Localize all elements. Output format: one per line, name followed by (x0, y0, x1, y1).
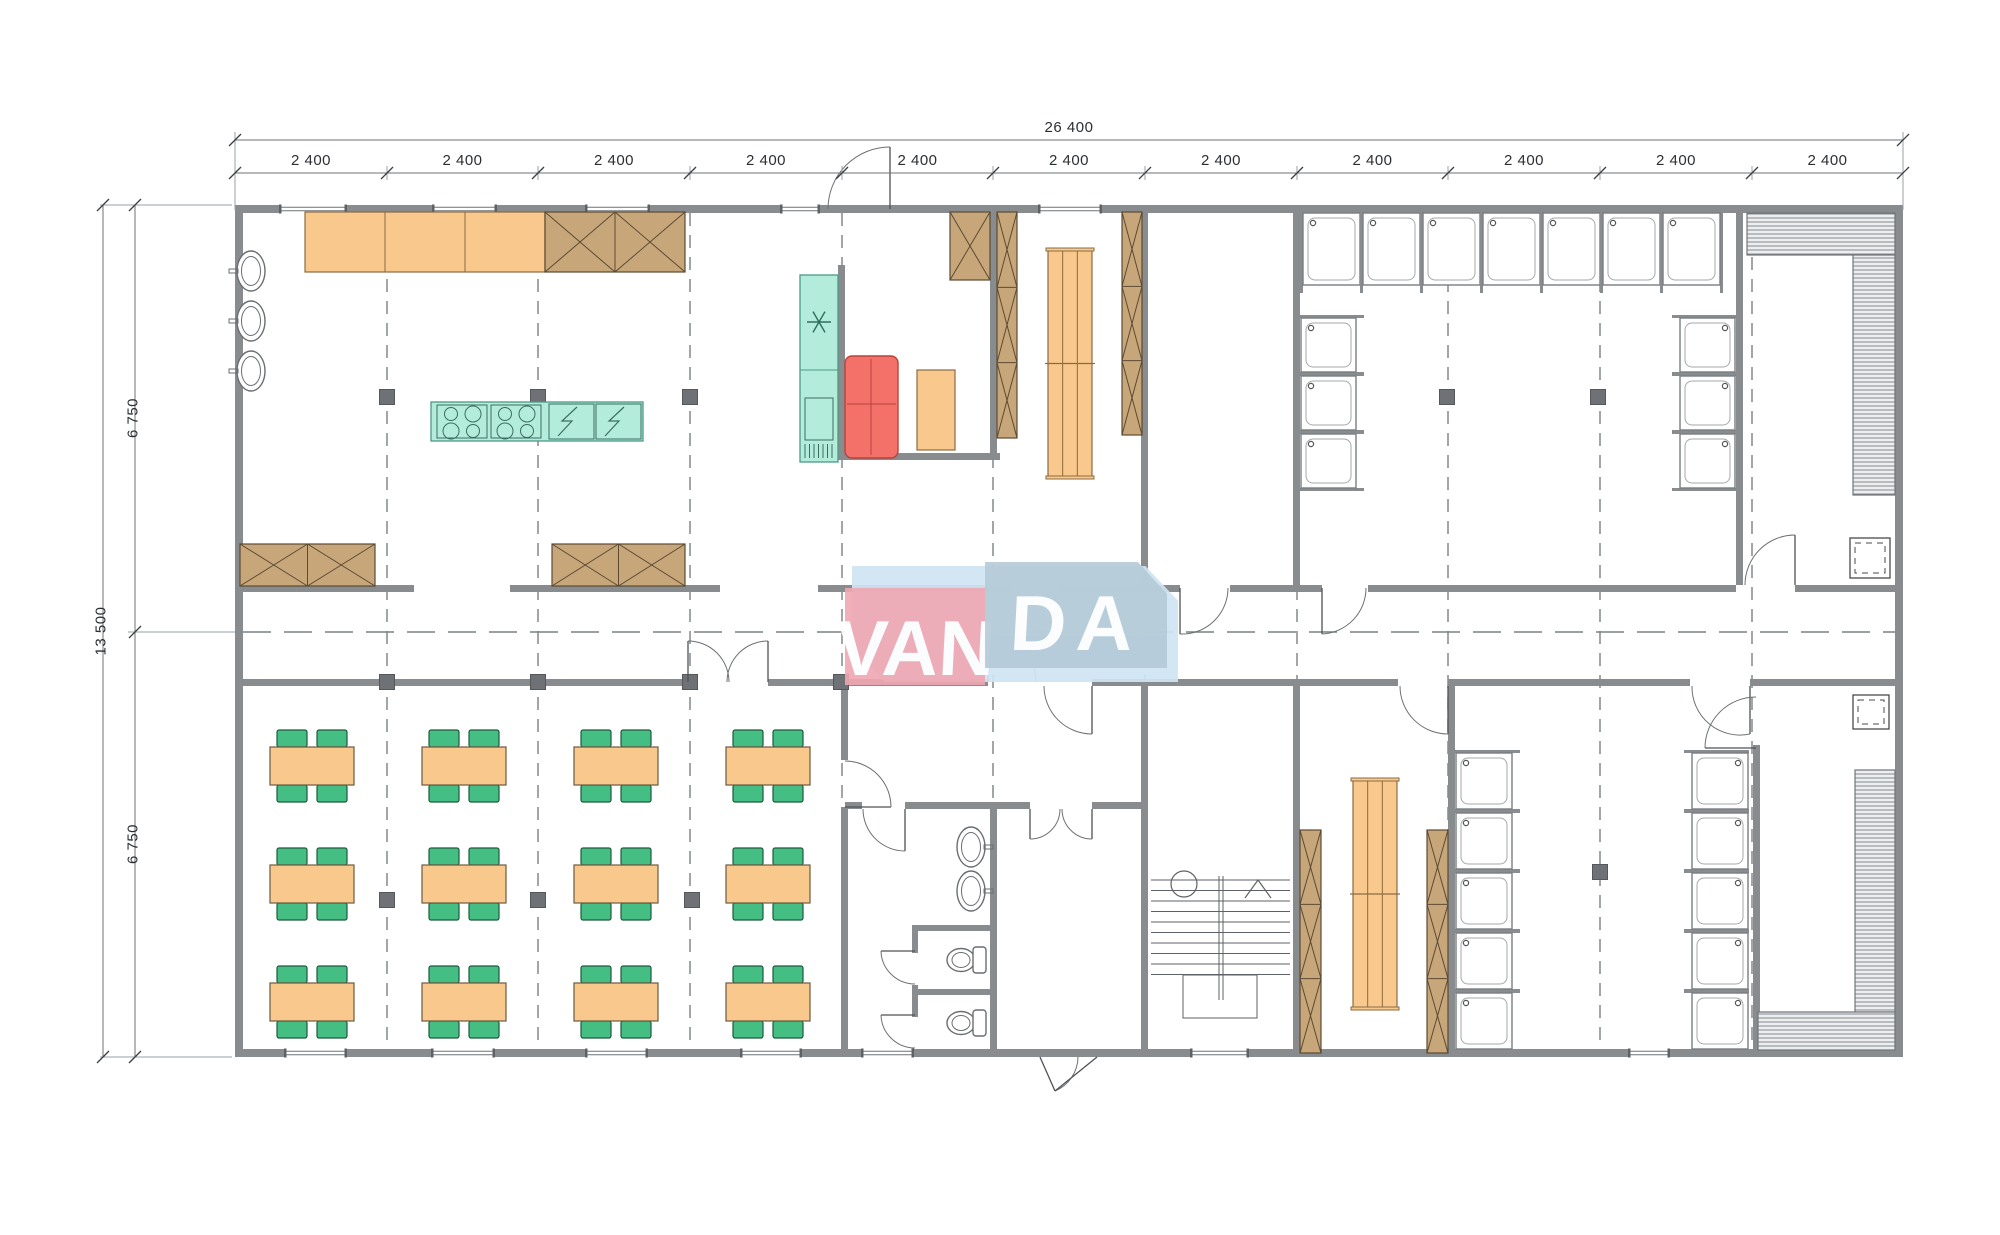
structural-column (834, 675, 849, 690)
dining-chair (277, 903, 307, 920)
window-jamb (1190, 1049, 1193, 1058)
door-swing-arc (1055, 1057, 1078, 1091)
structural-column (683, 675, 698, 690)
wall (1092, 802, 1145, 809)
window-jamb (800, 1049, 803, 1058)
dining-chair (773, 730, 803, 747)
wall (1795, 585, 1895, 592)
window-jamb (646, 1049, 649, 1058)
sauna-heater (1850, 538, 1890, 578)
bench-end-cap (1046, 248, 1094, 251)
dining-chair (277, 785, 307, 802)
dining-chair (469, 785, 499, 802)
dining-table (726, 865, 810, 903)
sauna-heater-inner (1855, 543, 1885, 573)
window-jamb (912, 1049, 915, 1058)
window-jamb (1038, 205, 1041, 214)
door-swing-arc (1044, 686, 1092, 734)
dining-table (270, 983, 354, 1021)
dining-chair (469, 966, 499, 983)
dining-chair (621, 848, 651, 865)
window (587, 1049, 646, 1057)
stair-landing (1183, 975, 1257, 1018)
window-jamb (1668, 1049, 1671, 1058)
wall (918, 925, 993, 931)
door-leaf (1040, 1057, 1055, 1091)
wall (841, 686, 848, 760)
door-swing-arc (863, 809, 905, 851)
window (1192, 1049, 1247, 1057)
window-jamb (861, 1049, 864, 1058)
door-swing-arc (1322, 588, 1366, 634)
wall (1141, 686, 1148, 1049)
dining-chair (429, 730, 459, 747)
window (286, 1049, 345, 1057)
floor-plan-drawing (0, 0, 2000, 1235)
dining-chair (277, 1021, 307, 1038)
wall (1750, 679, 1895, 686)
floor-plan-canvas: VAN DA 26 4002 4002 4002 4002 4002 4002 … (0, 0, 2000, 1235)
dining-chair (469, 903, 499, 920)
window-jamb (279, 205, 282, 214)
dimension-label: 26 400 (1045, 119, 1094, 136)
structural-column (531, 675, 546, 690)
kitchen-counter (305, 212, 545, 272)
window-jamb (345, 1049, 348, 1058)
window-jamb (431, 1049, 434, 1058)
dining-chair (733, 966, 763, 983)
stair-direction-arrow (1245, 880, 1271, 898)
dining-chair (317, 785, 347, 802)
dining-chair (733, 848, 763, 865)
wall (838, 265, 845, 460)
dimension-label: 2 400 (897, 152, 937, 169)
wall (1736, 213, 1743, 585)
dining-chair (317, 730, 347, 747)
dining-chair (773, 848, 803, 865)
sauna-heater-inner (1858, 700, 1884, 724)
wall (818, 585, 1010, 592)
dimension-label: 2 400 (1504, 152, 1544, 169)
dining-table (422, 983, 506, 1021)
sauna-bench-hatch (1747, 213, 1895, 255)
dining-chair (469, 730, 499, 747)
dining-chair (621, 785, 651, 802)
shower-tray (1663, 213, 1720, 285)
wall (1230, 585, 1322, 592)
window (742, 1049, 800, 1057)
dining-table (574, 983, 658, 1021)
wall (1368, 585, 1736, 592)
window-jamb (493, 1049, 496, 1058)
shower-tray (1303, 213, 1360, 285)
dimension-label: 2 400 (1352, 152, 1392, 169)
toilet-tank (973, 947, 986, 973)
dining-chair (773, 966, 803, 983)
dining-table (574, 747, 658, 785)
wall (235, 213, 243, 1049)
structural-column (380, 390, 395, 405)
dining-chair (317, 1021, 347, 1038)
dimension-label: 2 400 (746, 152, 786, 169)
dining-chair (773, 1021, 803, 1038)
dimension-label: 6 750 (125, 398, 142, 438)
dining-table (726, 747, 810, 785)
door-swing-arc (1030, 809, 1060, 839)
dining-chair (277, 730, 307, 747)
dining-chair (429, 785, 459, 802)
window-jamb (740, 1049, 743, 1058)
window (1040, 205, 1100, 213)
dimension-label: 2 400 (1201, 152, 1241, 169)
dining-chair (733, 903, 763, 920)
dining-chair (581, 785, 611, 802)
dimension-label: 2 400 (442, 152, 482, 169)
dimension-label: 6 750 (125, 824, 142, 864)
dining-chair (317, 966, 347, 983)
wall (918, 989, 993, 995)
shower-tray (1363, 213, 1420, 285)
dimension-label: 2 400 (1049, 152, 1089, 169)
structural-column (1591, 390, 1606, 405)
door-swing-arc (1400, 686, 1448, 734)
wall (905, 802, 1030, 809)
fridge-unit (800, 275, 838, 462)
door-swing-arc (1180, 588, 1228, 634)
dining-chair (429, 1021, 459, 1038)
shower-tray (1423, 213, 1480, 285)
window-jamb (780, 205, 783, 214)
bench-end-cap (1351, 778, 1399, 781)
dining-chair (733, 730, 763, 747)
door-swing-arc (1012, 588, 1058, 634)
dimension-label: 2 400 (1807, 152, 1847, 169)
door-swing-arc (727, 641, 768, 682)
toilet-tank (973, 1010, 986, 1036)
structural-column (380, 893, 395, 908)
dining-chair (277, 966, 307, 983)
bench-end-cap (1351, 1007, 1399, 1010)
wall (1092, 679, 1398, 686)
dining-chair (429, 966, 459, 983)
dimension-label: 2 400 (1656, 152, 1696, 169)
structural-column (380, 675, 395, 690)
dining-chair (733, 1021, 763, 1038)
window (1630, 1049, 1668, 1057)
dining-chair (429, 903, 459, 920)
shower-tray (1543, 213, 1600, 285)
dining-chair (773, 785, 803, 802)
wall (841, 807, 848, 1049)
dining-chair (581, 1021, 611, 1038)
toilet-bowl (947, 949, 975, 972)
dining-chair (773, 903, 803, 920)
dining-chair (621, 966, 651, 983)
window-jamb (1628, 1049, 1631, 1058)
structural-column (683, 390, 698, 405)
wall (1753, 745, 1760, 1049)
wall (1293, 213, 1300, 585)
dining-chair (621, 730, 651, 747)
door-swing-arc (988, 634, 1036, 682)
dining-chair (581, 966, 611, 983)
dimension-label: 13 500 (93, 607, 110, 656)
dining-chair (733, 785, 763, 802)
toilet-bowl (947, 1012, 975, 1035)
structural-column (1593, 865, 1608, 880)
dining-table (270, 747, 354, 785)
window (433, 1049, 493, 1057)
dining-chair (621, 1021, 651, 1038)
wall (1448, 686, 1455, 1049)
door-swing-arc (881, 951, 915, 984)
dining-chair (581, 848, 611, 865)
wall (990, 205, 997, 455)
dining-chair (469, 1021, 499, 1038)
bench-end-cap (1046, 476, 1094, 479)
window-jamb (284, 1049, 287, 1058)
door-swing-arc (1705, 697, 1756, 748)
dining-table (726, 983, 810, 1021)
wall (845, 802, 862, 809)
dimension-label: 2 400 (291, 152, 331, 169)
wall (243, 679, 688, 686)
door-swing-arc (1062, 809, 1092, 839)
dining-table (422, 747, 506, 785)
shower-tray (1483, 213, 1540, 285)
dining-chair (469, 848, 499, 865)
dining-chair (581, 903, 611, 920)
sauna-bench-hatch (1758, 1012, 1895, 1050)
shower-tray (1603, 213, 1660, 285)
structural-column (531, 893, 546, 908)
window (863, 1049, 912, 1057)
sauna-bench-hatch (1855, 770, 1895, 1012)
wall (1895, 213, 1903, 1049)
dimension-label: 2 400 (594, 152, 634, 169)
door-leaf (1055, 1057, 1097, 1091)
wall (1058, 585, 1180, 592)
dining-chair (277, 848, 307, 865)
stair-newel-post (1171, 871, 1197, 897)
dining-chair (581, 730, 611, 747)
dining-chair (317, 848, 347, 865)
structural-column (685, 893, 700, 908)
window-jamb (1100, 205, 1103, 214)
sauna-bench-hatch (1853, 255, 1895, 495)
pantry-table (917, 370, 955, 450)
door-swing-arc (845, 761, 891, 807)
dining-chair (317, 903, 347, 920)
wall (768, 679, 988, 686)
wall (1448, 679, 1690, 686)
window-jamb (818, 205, 821, 214)
dining-table (270, 865, 354, 903)
door-swing-arc (881, 1015, 915, 1048)
dining-table (574, 865, 658, 903)
wall (1293, 686, 1300, 1049)
wall (912, 925, 918, 953)
dining-chair (429, 848, 459, 865)
structural-column (1440, 390, 1455, 405)
wall (912, 985, 918, 1017)
dining-table (422, 865, 506, 903)
dining-chair (621, 903, 651, 920)
window-jamb (1247, 1049, 1250, 1058)
window-jamb (585, 1049, 588, 1058)
window (782, 205, 818, 213)
